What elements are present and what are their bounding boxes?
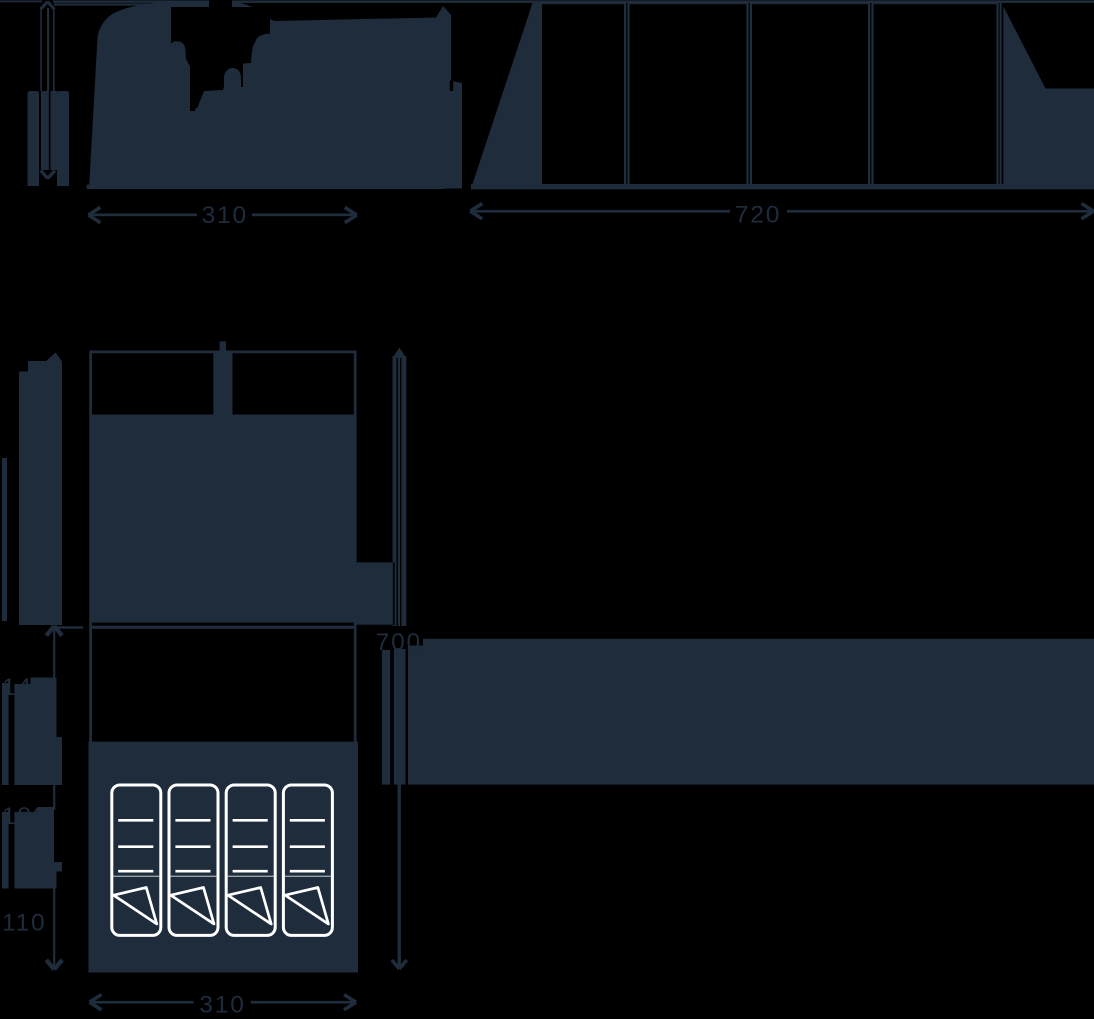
svg-text:110: 110 [2, 910, 46, 937]
svg-text:310: 310 [202, 202, 248, 229]
svg-text:700: 700 [376, 629, 422, 656]
svg-text:310: 310 [199, 991, 245, 1018]
svg-text:720: 720 [735, 202, 781, 229]
